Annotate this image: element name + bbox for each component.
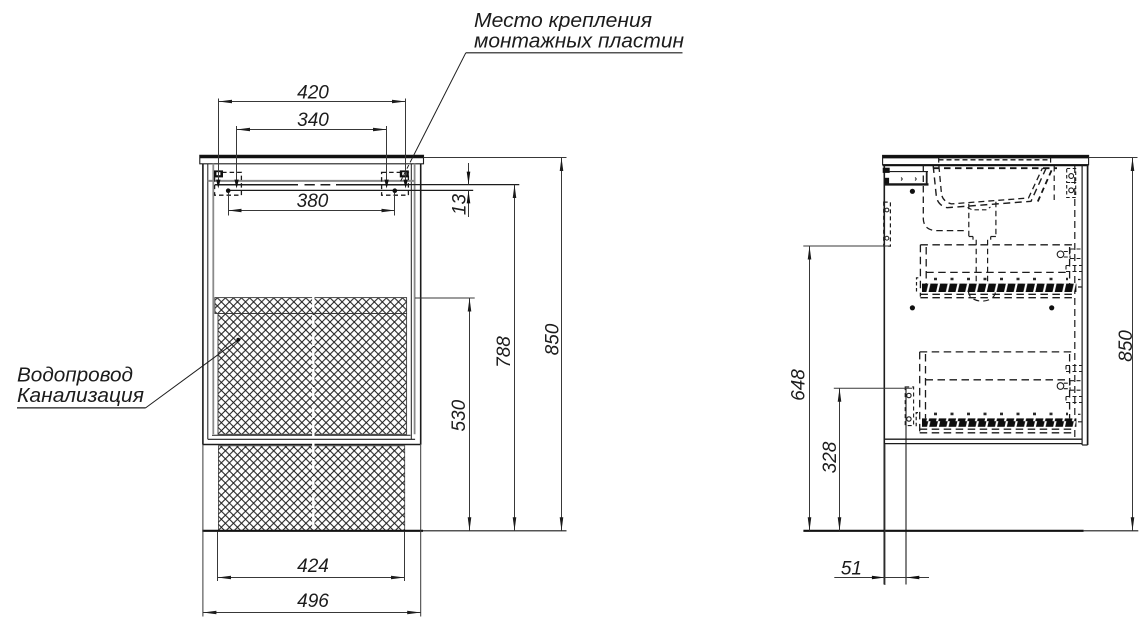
- svg-text:380: 380: [297, 191, 329, 212]
- svg-text:420: 420: [297, 83, 329, 104]
- svg-text:328: 328: [820, 441, 841, 473]
- svg-text:850: 850: [543, 323, 564, 355]
- svg-text:Место крепления: Место крепления: [474, 10, 652, 32]
- svg-text:340: 340: [297, 110, 329, 131]
- svg-text:788: 788: [494, 336, 515, 368]
- svg-text:монтажных пластин: монтажных пластин: [474, 31, 684, 53]
- svg-text:648: 648: [789, 369, 810, 401]
- svg-text:424: 424: [297, 556, 329, 577]
- svg-text:496: 496: [297, 591, 329, 612]
- svg-text:13: 13: [450, 194, 471, 216]
- svg-text:Водопровод: Водопровод: [17, 364, 133, 386]
- svg-text:850: 850: [1116, 330, 1137, 362]
- svg-text:Канализация: Канализация: [17, 385, 144, 407]
- svg-text:51: 51: [841, 558, 862, 579]
- svg-text:530: 530: [449, 399, 470, 431]
